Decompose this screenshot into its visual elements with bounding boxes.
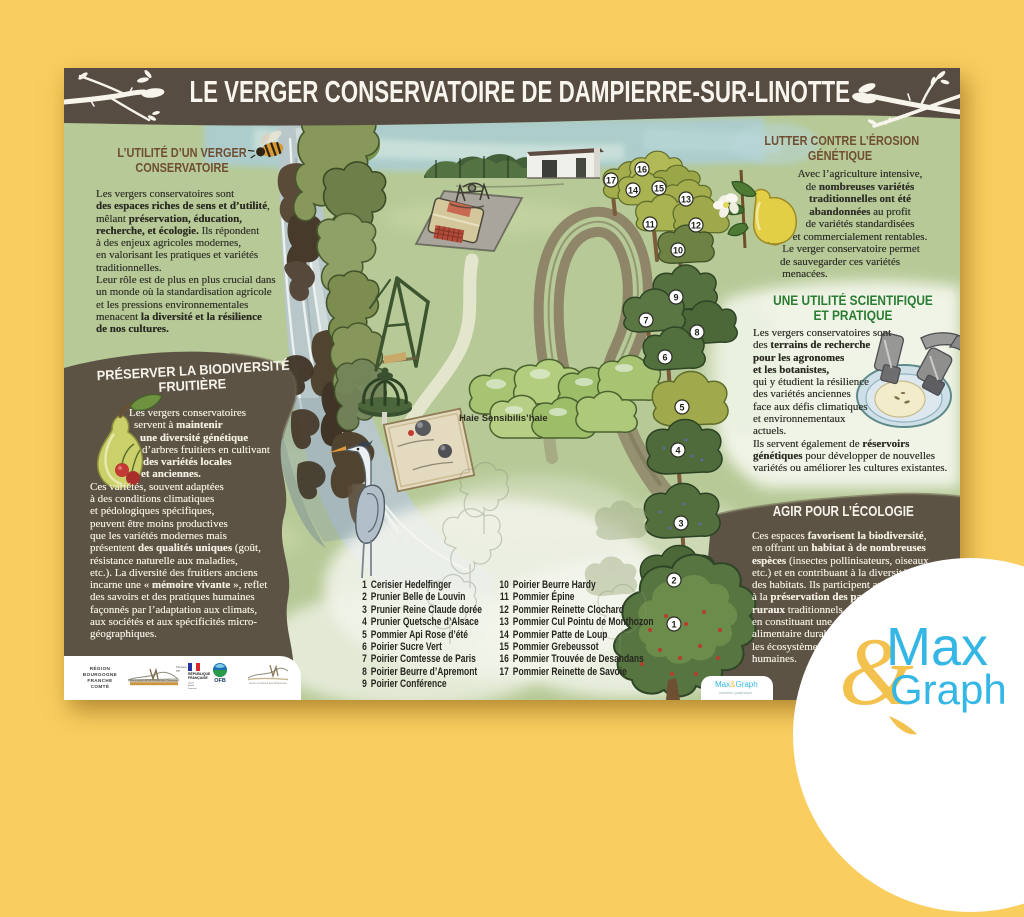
svg-text:OFB: OFB xyxy=(214,678,226,684)
svg-text:Graph: Graph xyxy=(890,666,1007,713)
svg-text:16: 16 xyxy=(637,165,647,175)
svg-text:Liberté: Liberté xyxy=(188,682,195,685)
svg-text:13: 13 xyxy=(681,195,691,205)
svg-text:8: 8 xyxy=(694,328,699,338)
svg-text:5: 5 xyxy=(679,403,684,413)
svg-text:2: 2 xyxy=(671,576,676,586)
svg-text:17: 17 xyxy=(606,176,616,186)
svg-text:12: 12 xyxy=(691,221,701,231)
svg-text:6: 6 xyxy=(662,353,667,363)
svg-text:10: 10 xyxy=(673,246,683,256)
svg-text:9: 9 xyxy=(673,293,678,303)
svg-text:1: 1 xyxy=(671,620,676,630)
svg-text:communauté de communes des Cha: communauté de communes des Chanceaux xyxy=(129,679,180,683)
svg-text:FRANÇAISE: FRANÇAISE xyxy=(188,676,209,680)
svg-text:11: 11 xyxy=(645,220,655,230)
svg-text:3: 3 xyxy=(678,519,683,529)
svg-text:15: 15 xyxy=(654,184,664,194)
svg-text:Fraternité: Fraternité xyxy=(188,687,197,690)
svg-text:terres comtoises des Chanceaux: terres comtoises des Chanceaux xyxy=(249,681,287,685)
svg-text:par: par xyxy=(176,669,180,673)
svg-text:7: 7 xyxy=(643,316,648,326)
svg-text:4: 4 xyxy=(675,446,680,456)
svg-text:14: 14 xyxy=(628,186,638,196)
svg-text:Égalité: Égalité xyxy=(188,684,195,687)
